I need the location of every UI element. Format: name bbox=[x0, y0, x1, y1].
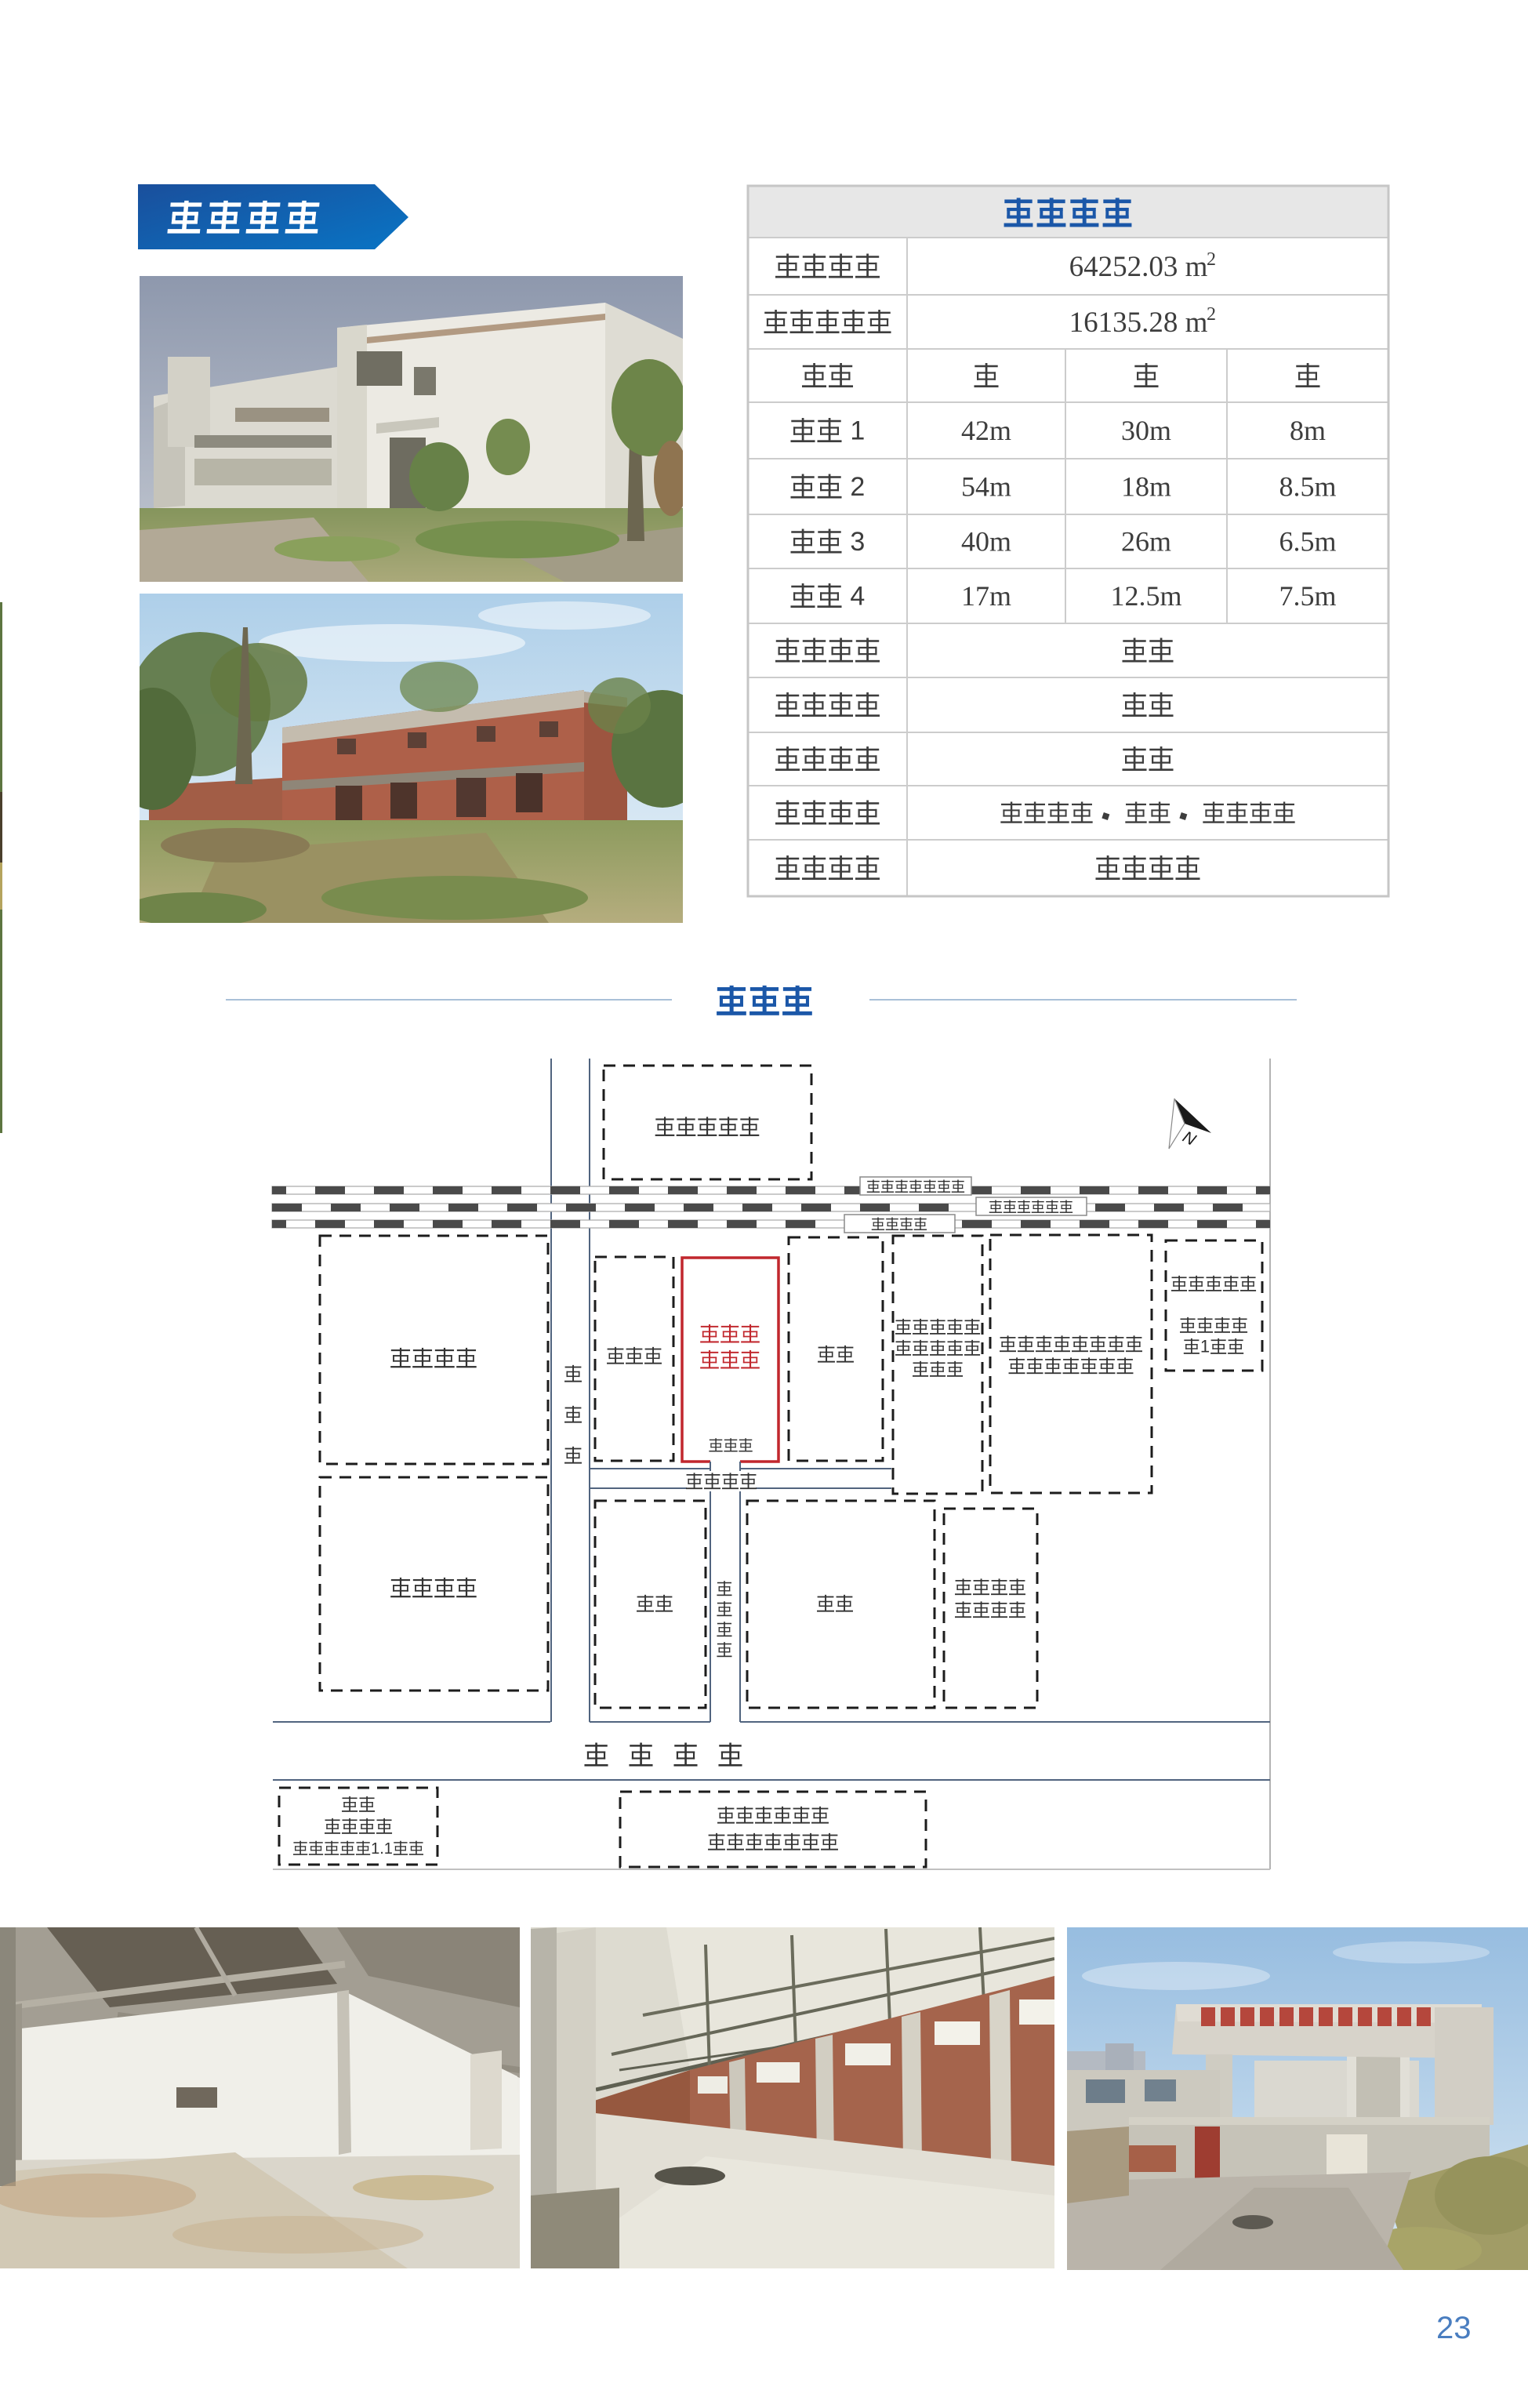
svg-text:2: 2 bbox=[843, 472, 865, 502]
svg-text:23: 23 bbox=[1436, 2311, 1472, 2345]
svg-text:4: 4 bbox=[843, 582, 865, 612]
svg-text:54m: 54m bbox=[961, 471, 1011, 503]
svg-text:26m: 26m bbox=[1121, 526, 1171, 558]
svg-text:30m: 30m bbox=[1121, 415, 1171, 446]
svg-text:42m: 42m bbox=[961, 415, 1011, 446]
svg-text:3: 3 bbox=[843, 527, 865, 557]
svg-text:1: 1 bbox=[1200, 1337, 1210, 1357]
svg-text:2: 2 bbox=[1207, 249, 1216, 270]
svg-text:18m: 18m bbox=[1121, 471, 1171, 503]
svg-text:8m: 8m bbox=[1290, 415, 1326, 446]
svg-text:1.1: 1.1 bbox=[371, 1840, 393, 1858]
svg-text:64252.03 m: 64252.03 m bbox=[1069, 251, 1208, 283]
svg-text:8.5m: 8.5m bbox=[1279, 471, 1337, 503]
svg-text:1: 1 bbox=[843, 416, 865, 446]
svg-text:16135.28 m: 16135.28 m bbox=[1069, 307, 1208, 339]
svg-text:N: N bbox=[1180, 1128, 1200, 1150]
svg-text:6.5m: 6.5m bbox=[1279, 526, 1337, 558]
svg-text:40m: 40m bbox=[961, 526, 1011, 558]
svg-text:7.5m: 7.5m bbox=[1279, 580, 1337, 612]
svg-text:17m: 17m bbox=[961, 580, 1011, 612]
svg-text:12.5m: 12.5m bbox=[1111, 580, 1182, 612]
svg-text:2: 2 bbox=[1207, 304, 1216, 325]
